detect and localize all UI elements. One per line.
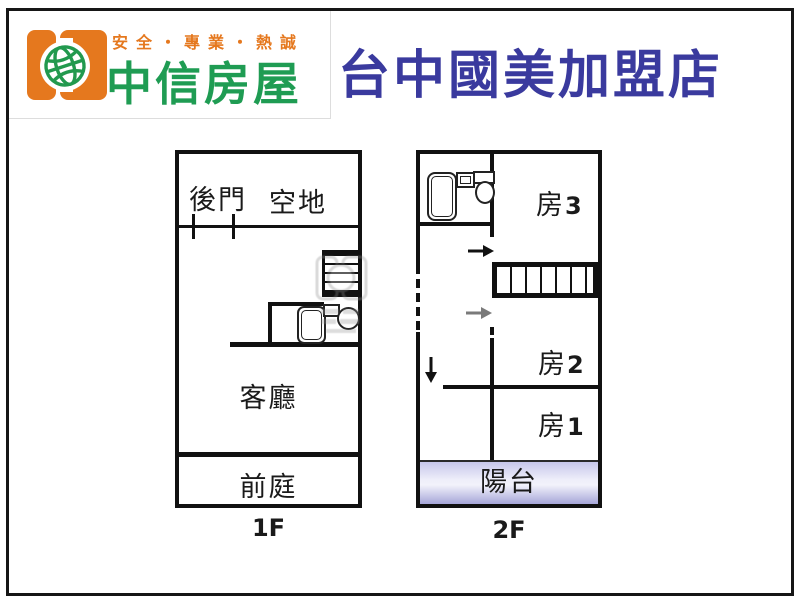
arrow-right-icon xyxy=(468,244,494,258)
balcony-area: 陽台 xyxy=(420,460,598,504)
wall-bathroom-bottom-1f xyxy=(230,342,358,347)
dashed-wall-opening xyxy=(416,265,420,332)
room-label-room3: 房3 xyxy=(536,183,582,222)
room-label-backdoor: 後門 xyxy=(189,178,247,217)
toilet-icon-2f xyxy=(475,181,495,204)
store-title: 台中國美加盟店 xyxy=(338,33,723,108)
wall-bathroom-left-1f xyxy=(268,302,272,342)
wall-hall-dash xyxy=(490,327,494,335)
wall-frontyard-divider xyxy=(179,452,358,457)
wall-room1-room2-divider xyxy=(443,385,598,389)
brand-name: 中信房屋 xyxy=(106,48,302,114)
arrow-right-grey-icon xyxy=(466,306,492,320)
room-label-frontyard: 前庭 xyxy=(179,465,358,504)
door-mark xyxy=(232,214,235,239)
wall-bathroom-bottom-2f xyxy=(420,222,493,226)
floor-label-2f: 2F xyxy=(416,516,602,544)
door-mark xyxy=(192,214,195,239)
floorplan-page: 安全・專業・熱誠 中信房屋 台中國美加盟店 後門 空地 客廳 前庭 1F 房3 xyxy=(0,0,800,600)
wall-hall-vertical xyxy=(490,338,494,460)
watermark xyxy=(314,255,370,339)
floor-label-1f: 1F xyxy=(175,514,362,542)
arrow-down-icon xyxy=(424,357,438,383)
wall-backyard-divider xyxy=(179,225,358,228)
room-label-room1: 房1 xyxy=(538,404,584,443)
bathtub-icon-2f xyxy=(427,172,457,221)
floorplan-2f: 房3 房2 房1 陽台 xyxy=(416,150,602,508)
room-label-openspace: 空地 xyxy=(269,181,327,220)
room-label-balcony: 陽台 xyxy=(420,462,598,504)
brand-logo-box: 安全・專業・熱誠 中信房屋 xyxy=(9,11,331,119)
stairs-2f xyxy=(492,262,598,298)
room-label-living: 客廳 xyxy=(179,376,358,415)
brand-logo-icon xyxy=(25,26,111,106)
room-label-room2: 房2 xyxy=(538,342,584,381)
